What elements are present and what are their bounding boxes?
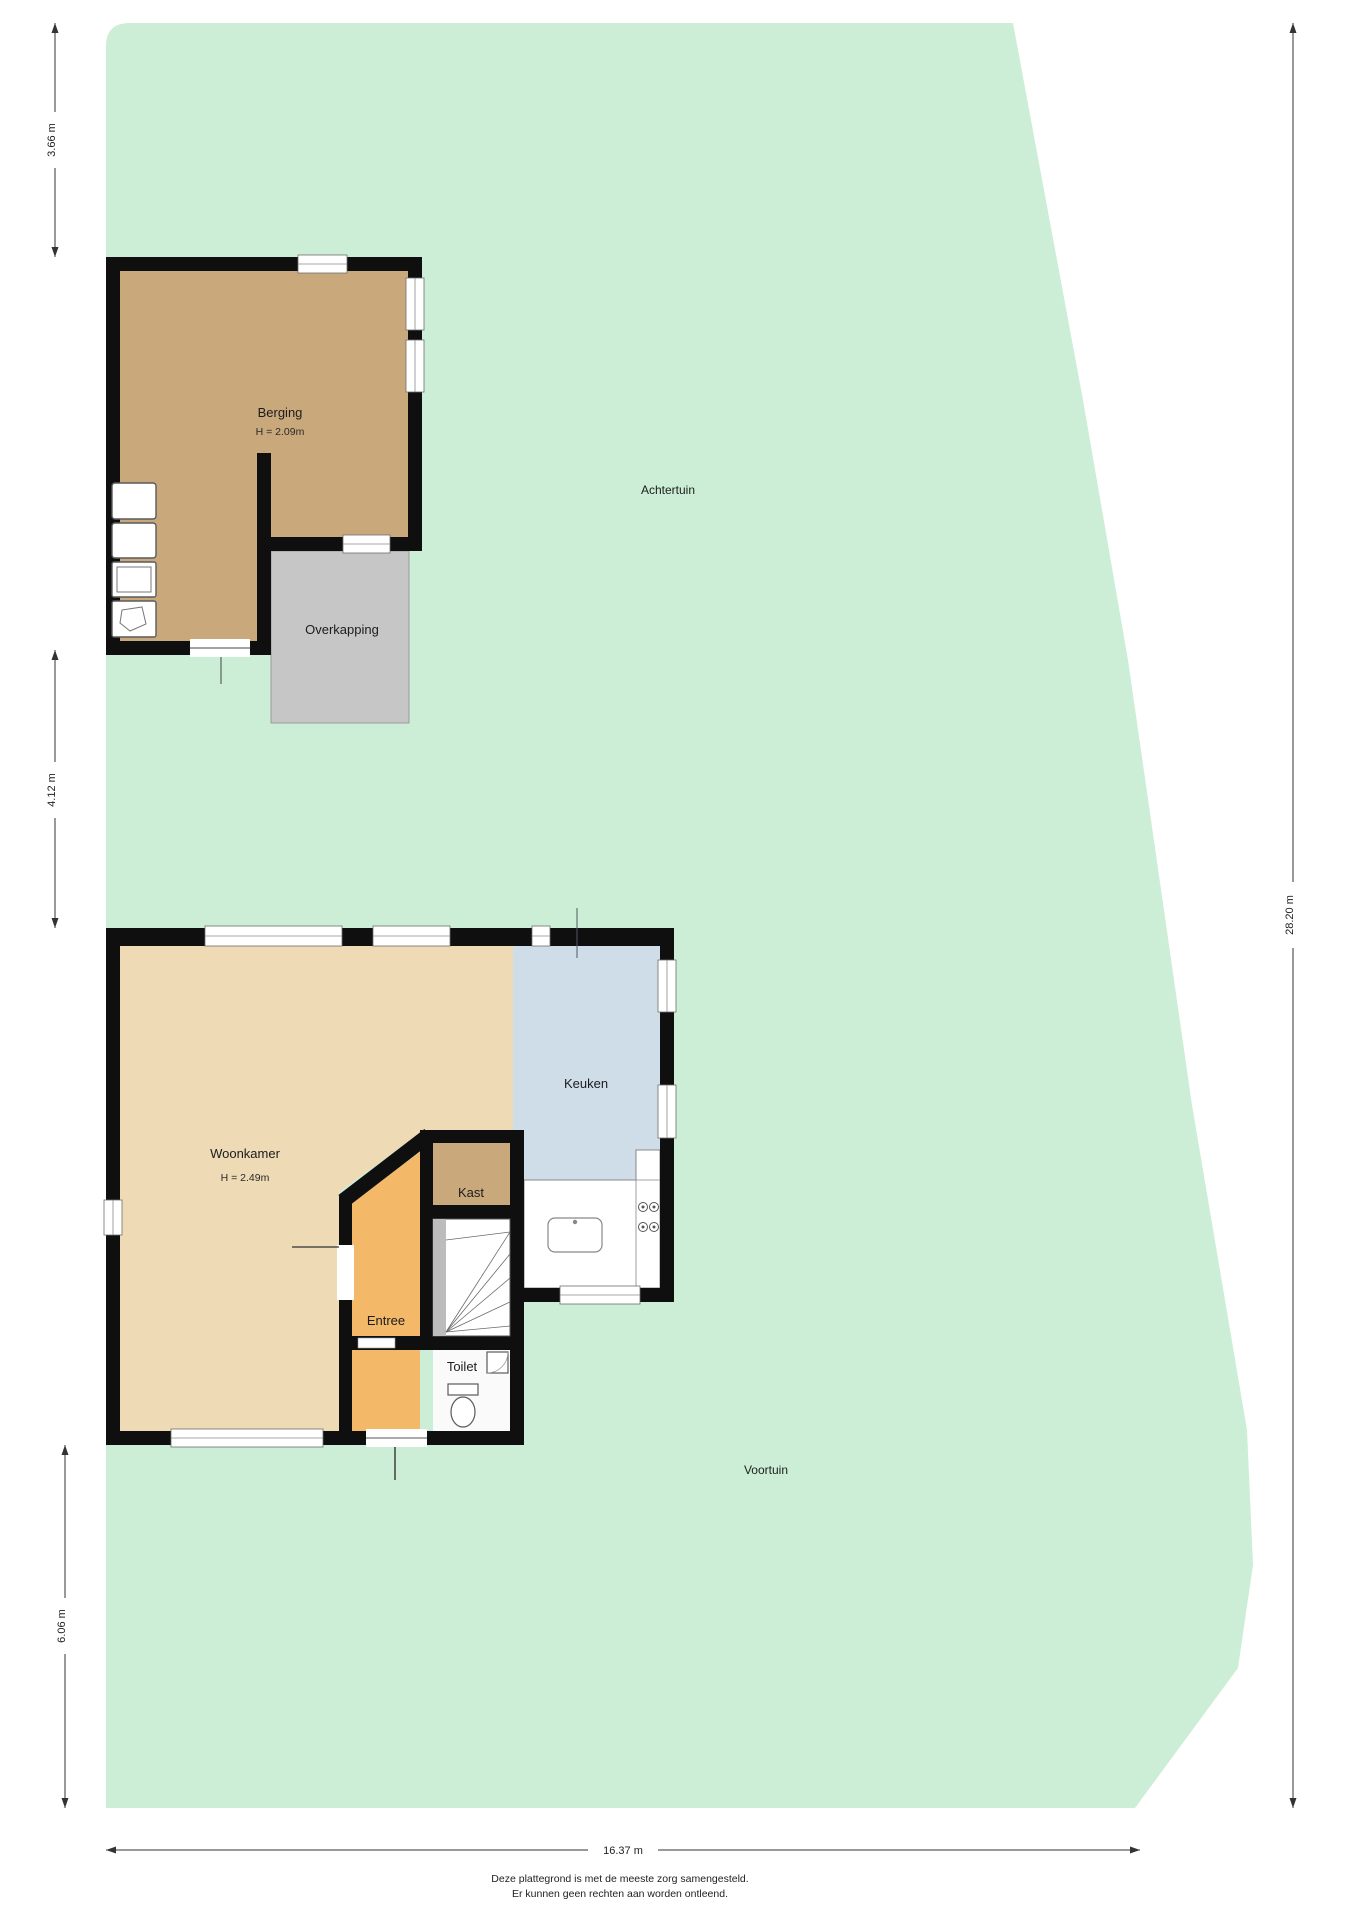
berging-north-window	[298, 255, 347, 273]
overkapping-window	[343, 535, 390, 553]
svg-text:16.37 m: 16.37 m	[603, 1845, 643, 1857]
room-keuken	[513, 946, 660, 1180]
footer-line-1: Deze plattegrond is met de meeste zorg s…	[491, 1873, 748, 1885]
keuken-east-window-1	[658, 960, 676, 1012]
toilet-door	[358, 1338, 395, 1348]
stairs	[433, 1219, 510, 1336]
svg-text:3.66 m: 3.66 m	[46, 123, 58, 157]
keuken-south-window	[560, 1286, 640, 1304]
berging-height-label: H = 2.09m	[256, 426, 305, 438]
berging-east-window-1	[406, 278, 424, 330]
floorplan-page: Achtertuin Voortuin	[0, 0, 1358, 1920]
svg-text:4.12 m: 4.12 m	[46, 773, 58, 807]
svg-text:6.06 m: 6.06 m	[56, 1609, 68, 1643]
berging-east-window-2	[406, 340, 424, 392]
appliance-washer	[112, 562, 156, 597]
keuken-north-window	[532, 926, 550, 946]
appliance-1	[112, 483, 156, 519]
svg-text:28.20 m: 28.20 m	[1284, 895, 1296, 935]
dimension-left-bottom: 6.06 m	[56, 1445, 69, 1808]
overkapping-label: Overkapping	[305, 622, 379, 637]
dimension-bottom: 16.37 m	[106, 1845, 1140, 1857]
corner-sink-icon	[487, 1352, 508, 1373]
back-garden-label: Achtertuin	[641, 483, 695, 497]
toilet-icon	[448, 1384, 478, 1427]
woonkamer-west-window	[104, 1200, 122, 1235]
appliance-2	[112, 523, 156, 558]
woonkamer-south-window	[171, 1429, 323, 1447]
toilet-label: Toilet	[447, 1359, 478, 1374]
keuken-east-window-2	[658, 1085, 676, 1138]
dimension-left-middle: 4.12 m	[46, 650, 59, 928]
berging-label: Berging	[258, 405, 303, 420]
dimension-right: 28.20 m	[1284, 23, 1297, 1808]
room-overkapping	[271, 551, 409, 723]
woonkamer-north-window-1	[205, 926, 342, 946]
woonkamer-label: Woonkamer	[210, 1146, 281, 1161]
woonkamer-north-window-2	[373, 926, 450, 946]
keuken-label: Keuken	[564, 1076, 608, 1091]
floorplan-canvas: Achtertuin Voortuin	[0, 0, 1358, 1920]
laundry-sink	[112, 601, 156, 637]
kast-label: Kast	[458, 1185, 484, 1200]
sink-icon	[548, 1218, 602, 1252]
entree-label: Entree	[367, 1313, 405, 1328]
footer-line-2: Er kunnen geen rechten aan worden ontlee…	[512, 1888, 728, 1900]
front-garden-label: Voortuin	[744, 1463, 788, 1477]
dimension-left-top: 3.66 m	[46, 23, 59, 257]
woonkamer-height-label: H = 2.49m	[221, 1172, 270, 1184]
